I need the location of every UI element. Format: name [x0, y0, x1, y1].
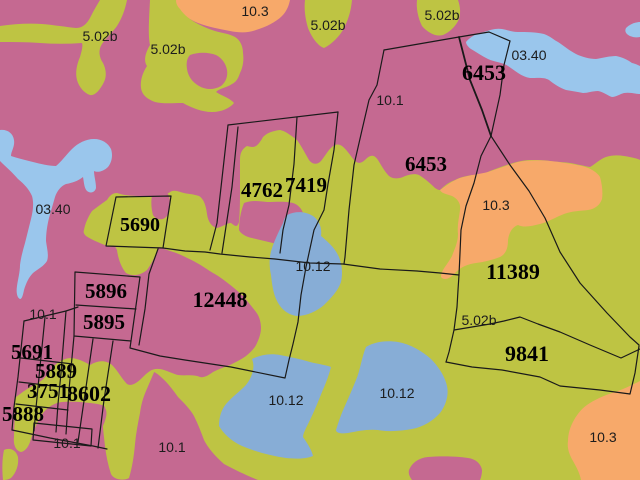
svg-text:10.1: 10.1 [53, 435, 80, 451]
svg-text:5.02b: 5.02b [150, 41, 185, 57]
svg-text:4762: 4762 [241, 178, 283, 202]
svg-text:10.3: 10.3 [241, 3, 268, 19]
svg-text:12448: 12448 [193, 287, 248, 312]
svg-text:10.12: 10.12 [295, 258, 330, 274]
svg-text:10.1: 10.1 [158, 439, 185, 455]
svg-text:5.02b: 5.02b [461, 312, 496, 328]
svg-text:10.1: 10.1 [376, 92, 403, 108]
svg-text:5.02b: 5.02b [424, 7, 459, 23]
svg-text:11389: 11389 [486, 259, 540, 284]
svg-text:10.12: 10.12 [268, 392, 303, 408]
svg-text:03.40: 03.40 [511, 47, 546, 63]
svg-text:6453: 6453 [462, 60, 506, 85]
svg-text:5896: 5896 [85, 279, 127, 303]
svg-text:7419: 7419 [285, 173, 327, 197]
svg-text:6453: 6453 [405, 152, 447, 176]
svg-text:3751: 3751 [27, 379, 69, 403]
svg-text:5.02b: 5.02b [310, 17, 345, 33]
svg-text:10.12: 10.12 [379, 385, 414, 401]
svg-text:03.40: 03.40 [35, 201, 70, 217]
svg-text:9841: 9841 [505, 341, 549, 366]
svg-text:5895: 5895 [83, 310, 125, 334]
svg-text:10.3: 10.3 [589, 429, 616, 445]
svg-text:10.1: 10.1 [29, 306, 56, 322]
svg-text:5690: 5690 [120, 214, 160, 236]
svg-text:5.02b: 5.02b [82, 28, 117, 44]
svg-text:5888: 5888 [2, 402, 44, 426]
svg-text:8602: 8602 [67, 381, 111, 406]
svg-text:10.3: 10.3 [482, 197, 509, 213]
